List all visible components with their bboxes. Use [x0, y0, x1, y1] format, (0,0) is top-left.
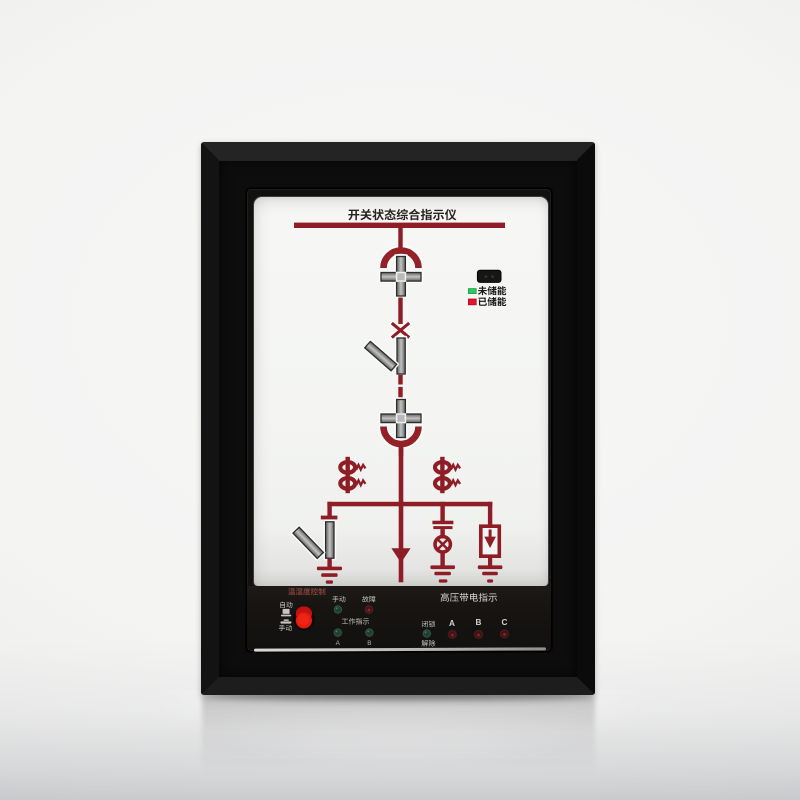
svg-text:A: A	[449, 619, 455, 628]
svg-text:B: B	[475, 618, 481, 627]
svg-text:C: C	[502, 618, 508, 627]
svg-text:B: B	[367, 640, 371, 647]
svg-text:A: A	[336, 640, 341, 647]
